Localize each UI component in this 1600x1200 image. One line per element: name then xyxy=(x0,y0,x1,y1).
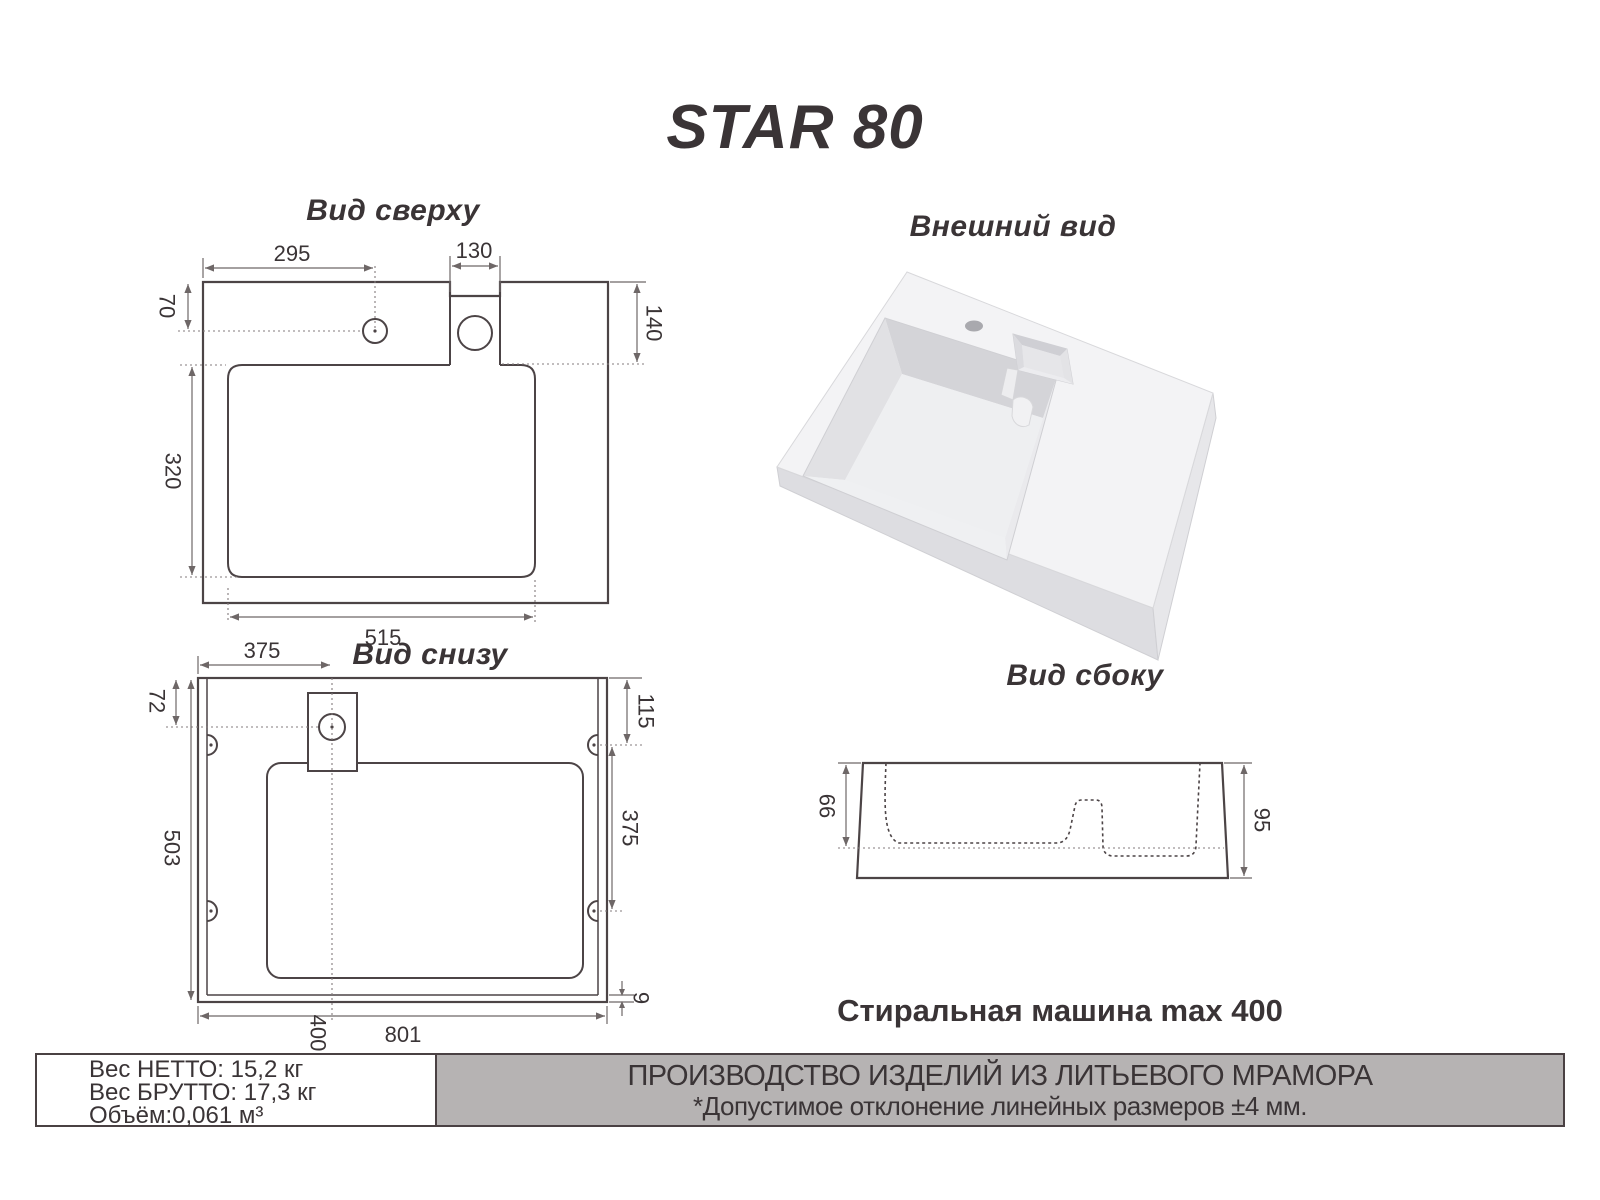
net-weight: Вес НЕТТО: 15,2 кг xyxy=(89,1058,435,1081)
top-view-outline xyxy=(203,282,608,603)
svg-text:140: 140 xyxy=(642,305,667,342)
dim-95: 95 xyxy=(1224,763,1275,878)
dim-400-801: 400 801 xyxy=(198,1006,607,1051)
faucet-hole-3d xyxy=(965,321,983,332)
svg-text:66: 66 xyxy=(815,794,840,818)
svg-text:400: 400 xyxy=(306,1015,331,1052)
manufacturer-banner: ПРОИЗВОДСТВО ИЗДЕЛИЙ ИЗ ЛИТЬЕВОГО МРАМОР… xyxy=(435,1055,1563,1125)
svg-text:375: 375 xyxy=(244,638,281,663)
svg-text:95: 95 xyxy=(1250,808,1275,832)
svg-text:295: 295 xyxy=(274,241,311,266)
banner-line1: ПРОИЗВОДСТВО ИЗДЕЛИЙ ИЗ ЛИТЬЕВОГО МРАМОР… xyxy=(627,1060,1372,1092)
external-view-render xyxy=(755,248,1425,668)
svg-text:375: 375 xyxy=(618,810,643,847)
dim-115: 115 xyxy=(600,678,659,745)
top-view-drawing: 295 130 70 140 320 xyxy=(140,230,680,660)
bottom-view-drawing: 375 72 503 115 375 xyxy=(140,630,680,1055)
dim-375-top: 375 xyxy=(198,638,330,674)
svg-text:72: 72 xyxy=(145,689,170,713)
banner-line2: *Допустимое отклонение линейных размеров… xyxy=(693,1092,1307,1121)
gross-weight: Вес БРУТТО: 17,3 кг xyxy=(89,1081,435,1104)
dim-503: 503 xyxy=(160,680,192,1000)
svg-text:9: 9 xyxy=(629,992,654,1004)
external-view-title: Внешний вид xyxy=(883,210,1143,244)
side-view-outline xyxy=(857,763,1228,878)
hole-center-dot xyxy=(373,329,376,332)
svg-text:503: 503 xyxy=(160,830,185,867)
weight-info-box: Вес НЕТТО: 15,2 кг Вес БРУТТО: 17,3 кг О… xyxy=(37,1055,435,1125)
volume: Объём:0,061 м³ xyxy=(89,1104,435,1127)
drain-bump xyxy=(1012,397,1033,427)
dim-66: 66 xyxy=(815,763,862,846)
dim-9: 9 xyxy=(609,981,654,1016)
dim-130: 130 xyxy=(450,238,500,292)
svg-text:320: 320 xyxy=(161,453,186,490)
svg-text:130: 130 xyxy=(456,238,493,263)
svg-text:801: 801 xyxy=(385,1022,422,1047)
svg-text:115: 115 xyxy=(634,693,659,728)
top-view-title: Вид сверху xyxy=(293,194,493,228)
washing-machine-note: Стиральная машина max 400 xyxy=(810,993,1310,1029)
svg-text:70: 70 xyxy=(155,294,180,318)
side-view-drawing: 66 95 xyxy=(790,740,1290,910)
sink-3d-render xyxy=(777,272,1216,660)
bottom-view-outline xyxy=(198,678,607,1002)
info-banner: Вес НЕТТО: 15,2 кг Вес БРУТТО: 17,3 кг О… xyxy=(35,1053,1565,1127)
drawing-sheet: STAR 80 Вид сверху Внешний вид Вид снизу… xyxy=(0,0,1600,1200)
page-title: STAR 80 xyxy=(595,92,995,163)
